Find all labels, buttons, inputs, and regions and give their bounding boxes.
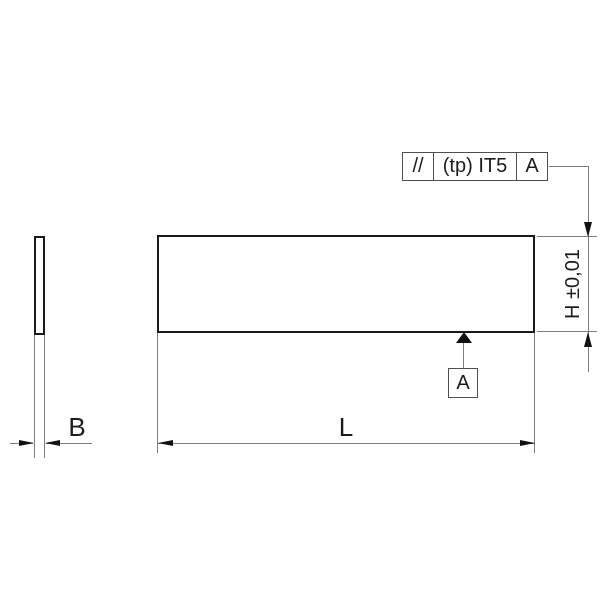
tolerance-value: (tp) IT5 — [433, 153, 517, 180]
front-view-outline — [157, 235, 535, 333]
datum-triangle — [456, 332, 472, 343]
fcf-leader-line — [549, 166, 589, 167]
datum-label: A — [456, 372, 469, 395]
b-arrowhead-right — [45, 440, 60, 446]
side-view-outline — [34, 236, 45, 335]
datum-box: A — [448, 368, 478, 398]
parallelism-symbol: // — [403, 153, 433, 180]
l-arrowhead-right — [520, 440, 535, 446]
l-arrowhead-left — [158, 440, 173, 446]
dimension-l-label: L — [331, 413, 361, 441]
feature-control-frame: // (tp) IT5 A — [402, 152, 548, 181]
dimension-b-label: B — [62, 413, 92, 441]
h-arrowhead-bottom — [584, 332, 592, 347]
technical-drawing-canvas: B L H ±0,01 // (tp) IT5 A A — [0, 0, 600, 600]
l-dimension-line — [158, 443, 535, 444]
dimension-h-label: H ±0,01 — [561, 224, 585, 344]
h-arrowhead-top — [584, 222, 592, 237]
l-extension-line-left — [157, 333, 158, 453]
l-extension-line-right — [534, 333, 535, 453]
datum-leader-line — [463, 343, 464, 368]
datum-reference: A — [517, 153, 547, 180]
b-extension-line-left — [34, 335, 35, 458]
b-arrowhead-left — [19, 440, 34, 446]
